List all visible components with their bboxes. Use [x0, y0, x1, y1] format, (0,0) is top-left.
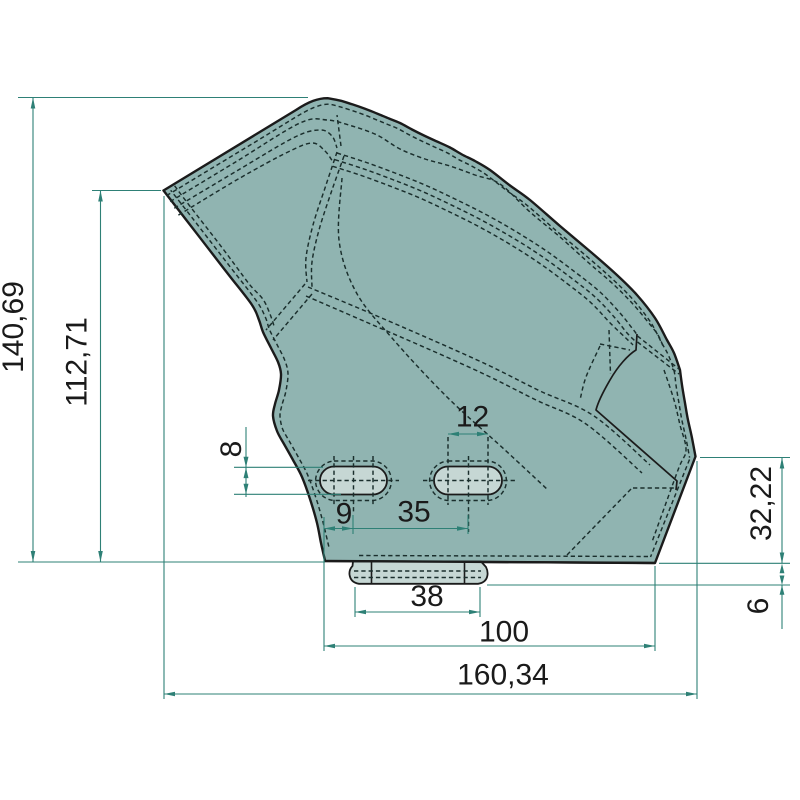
svg-text:100: 100 — [479, 616, 529, 649]
svg-text:160,34: 160,34 — [457, 659, 549, 692]
svg-text:112,71: 112,71 — [61, 317, 94, 407]
svg-text:140,69: 140,69 — [0, 281, 30, 373]
svg-text:32,22: 32,22 — [745, 466, 778, 541]
svg-text:12: 12 — [456, 401, 489, 434]
svg-text:38: 38 — [410, 580, 443, 613]
svg-text:8: 8 — [215, 441, 248, 458]
svg-text:9: 9 — [336, 498, 353, 531]
svg-text:35: 35 — [397, 496, 430, 529]
svg-text:6: 6 — [742, 598, 775, 615]
